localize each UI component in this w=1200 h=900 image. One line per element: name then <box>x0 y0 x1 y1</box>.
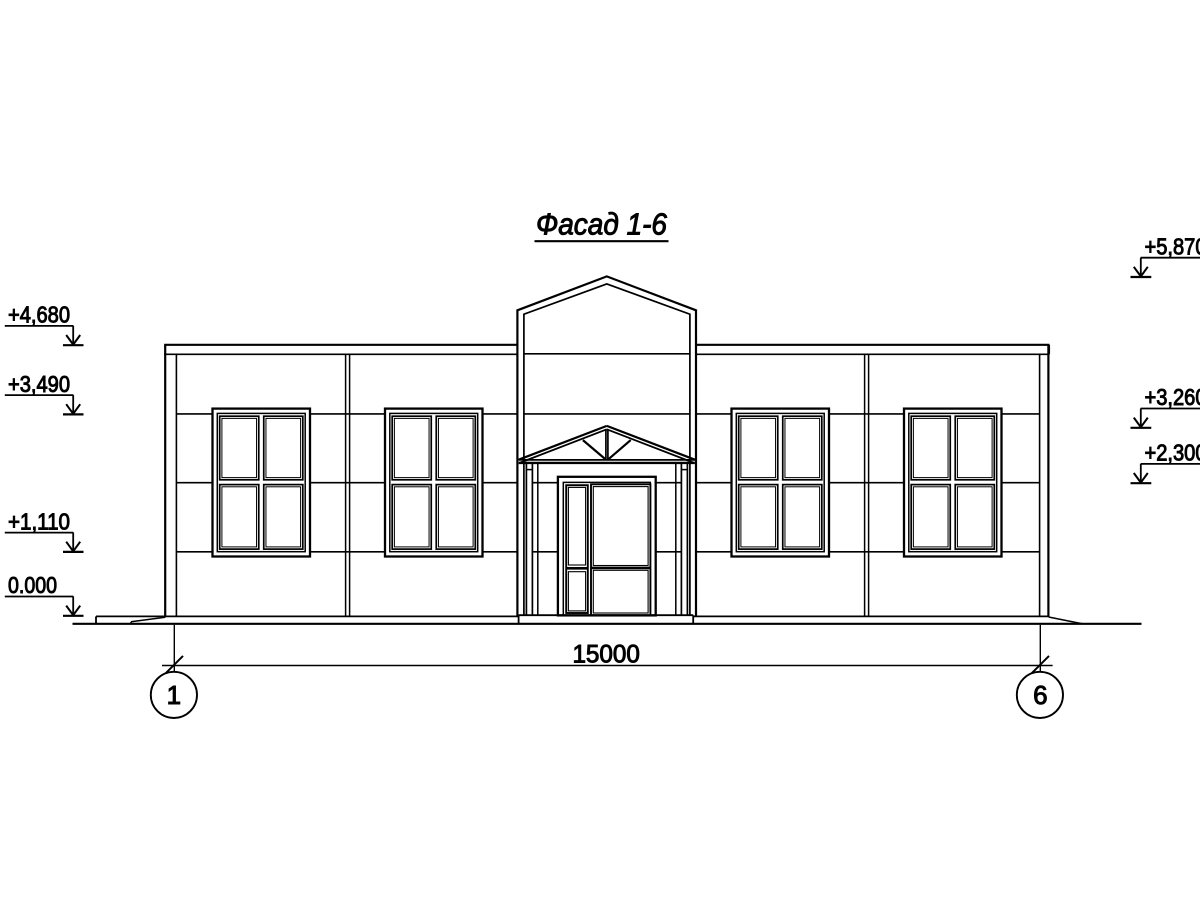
svg-text:+5,870: +5,870 <box>1145 233 1200 259</box>
svg-text:15000: 15000 <box>572 640 640 668</box>
svg-text:+1,110: +1,110 <box>8 508 70 534</box>
svg-text:+4,680: +4,680 <box>8 302 70 328</box>
svg-text:Фасад 1-6: Фасад 1-6 <box>536 207 668 242</box>
svg-text:0.000: 0.000 <box>8 572 57 598</box>
svg-text:1: 1 <box>167 680 181 710</box>
svg-text:+2,300: +2,300 <box>1145 440 1200 466</box>
svg-text:+3,260: +3,260 <box>1145 384 1200 410</box>
svg-text:6: 6 <box>1033 680 1047 710</box>
svg-text:+3,490: +3,490 <box>8 371 70 397</box>
